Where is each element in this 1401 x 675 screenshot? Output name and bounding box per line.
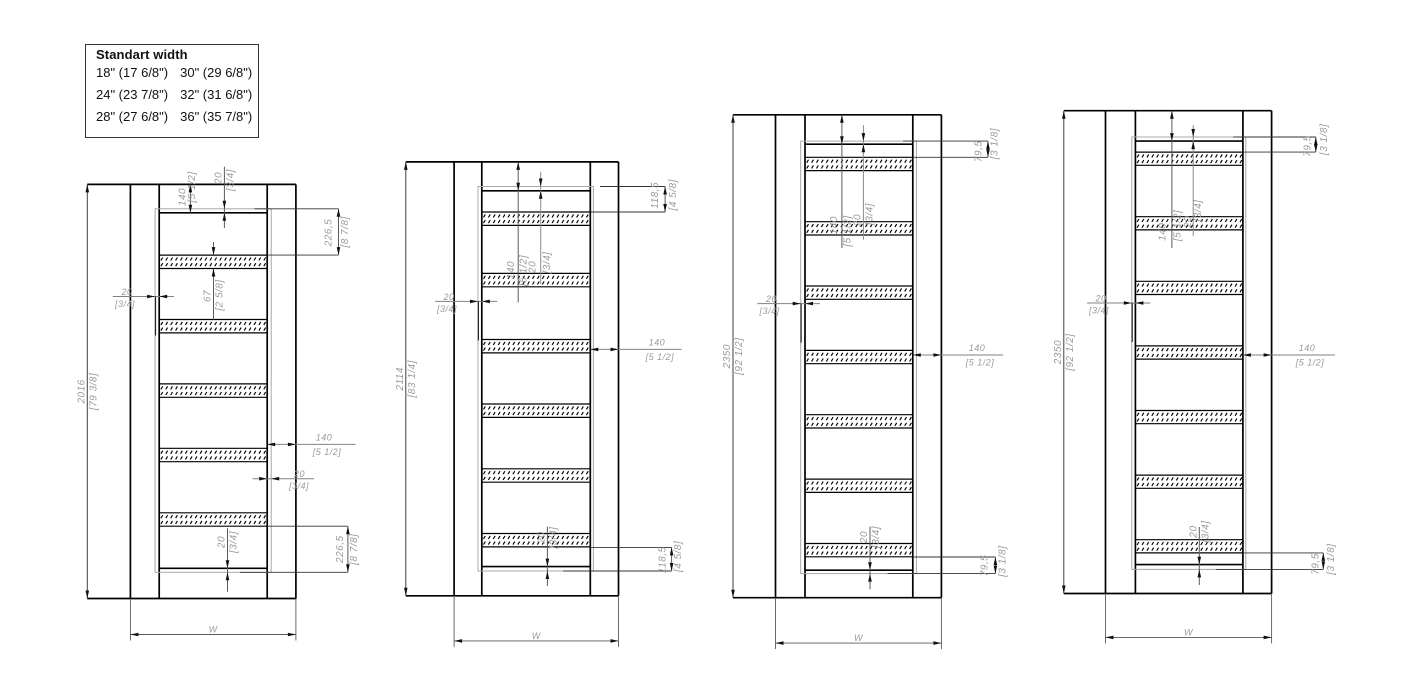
svg-text:140: 140 [316,432,333,442]
svg-text:20: 20 [213,172,224,185]
svg-text:20: 20 [293,469,305,479]
svg-text:118,5: 118,5 [650,182,661,209]
svg-text:20: 20 [120,287,132,297]
svg-text:[3/4]: [3/4] [1193,200,1204,223]
svg-text:W: W [854,633,864,643]
svg-text:2114: 2114 [395,367,406,392]
svg-text:[3/4]: [3/4] [548,527,559,550]
svg-text:20: 20 [217,536,228,549]
svg-text:[3/4]: [3/4] [1088,306,1109,316]
svg-text:[5 1/2]: [5 1/2] [1295,358,1325,368]
svg-text:140: 140 [649,337,666,347]
svg-text:20: 20 [765,294,777,304]
svg-text:[4 5/8]: [4 5/8] [673,541,684,573]
svg-text:[3/4]: [3/4] [229,531,240,554]
svg-text:2350: 2350 [722,344,733,369]
svg-text:[3/4]: [3/4] [758,306,779,316]
svg-text:[2 5/8]: [2 5/8] [215,279,226,311]
svg-text:79,5: 79,5 [1311,553,1322,574]
svg-text:[3/4]: [3/4] [864,203,875,226]
svg-text:140: 140 [506,261,517,279]
svg-text:79,5: 79,5 [974,141,985,162]
svg-text:[3/4]: [3/4] [225,169,236,192]
svg-text:W: W [209,625,219,635]
svg-text:2016: 2016 [76,379,87,404]
svg-text:[3/4]: [3/4] [288,481,309,491]
svg-text:140: 140 [1299,343,1316,353]
svg-text:[3/4]: [3/4] [871,526,882,549]
svg-text:79,5: 79,5 [1303,135,1314,156]
svg-text:[3/4]: [3/4] [114,299,135,309]
svg-text:W: W [1184,627,1194,637]
svg-text:[3/4]: [3/4] [436,304,457,314]
svg-text:[83 1/4]: [83 1/4] [407,360,418,398]
svg-text:[3/4]: [3/4] [1200,521,1211,544]
svg-text:[8 7/8]: [8 7/8] [340,216,351,248]
svg-text:226,5: 226,5 [335,535,346,564]
svg-text:20: 20 [536,531,547,544]
svg-text:[79 3/8]: [79 3/8] [88,373,99,411]
svg-text:2350: 2350 [1053,340,1064,365]
svg-text:[3 1/8]: [3 1/8] [998,546,1009,578]
svg-text:[3 1/8]: [3 1/8] [1319,124,1330,156]
svg-text:20: 20 [1094,294,1106,304]
svg-text:[3 1/8]: [3 1/8] [990,128,1001,160]
svg-text:79,5: 79,5 [980,555,991,576]
svg-text:[5 1/2]: [5 1/2] [1172,210,1183,242]
svg-text:[8 7/8]: [8 7/8] [349,534,360,566]
svg-text:W: W [532,631,542,641]
svg-text:20: 20 [528,261,539,274]
svg-text:140: 140 [1157,223,1168,241]
svg-text:20: 20 [442,292,454,302]
svg-text:[5 1/2]: [5 1/2] [965,358,995,368]
svg-text:[4 5/8]: [4 5/8] [668,179,679,211]
svg-text:[92 1/2]: [92 1/2] [734,338,745,376]
svg-text:140: 140 [969,343,986,353]
svg-text:140: 140 [829,216,840,234]
svg-text:67: 67 [203,290,214,302]
svg-text:20: 20 [1188,525,1199,538]
svg-text:226,5: 226,5 [324,219,335,248]
svg-text:[5 1/2]: [5 1/2] [312,447,342,457]
svg-text:[5 1/2]: [5 1/2] [645,352,675,362]
svg-text:[3 1/8]: [3 1/8] [1326,543,1337,575]
svg-text:20: 20 [852,214,863,227]
svg-text:118,5: 118,5 [658,546,669,573]
svg-text:20: 20 [859,531,870,544]
svg-text:[5 1/2]: [5 1/2] [187,171,198,203]
svg-text:[3/4]: [3/4] [542,252,553,275]
svg-text:[92 1/2]: [92 1/2] [1065,333,1076,371]
